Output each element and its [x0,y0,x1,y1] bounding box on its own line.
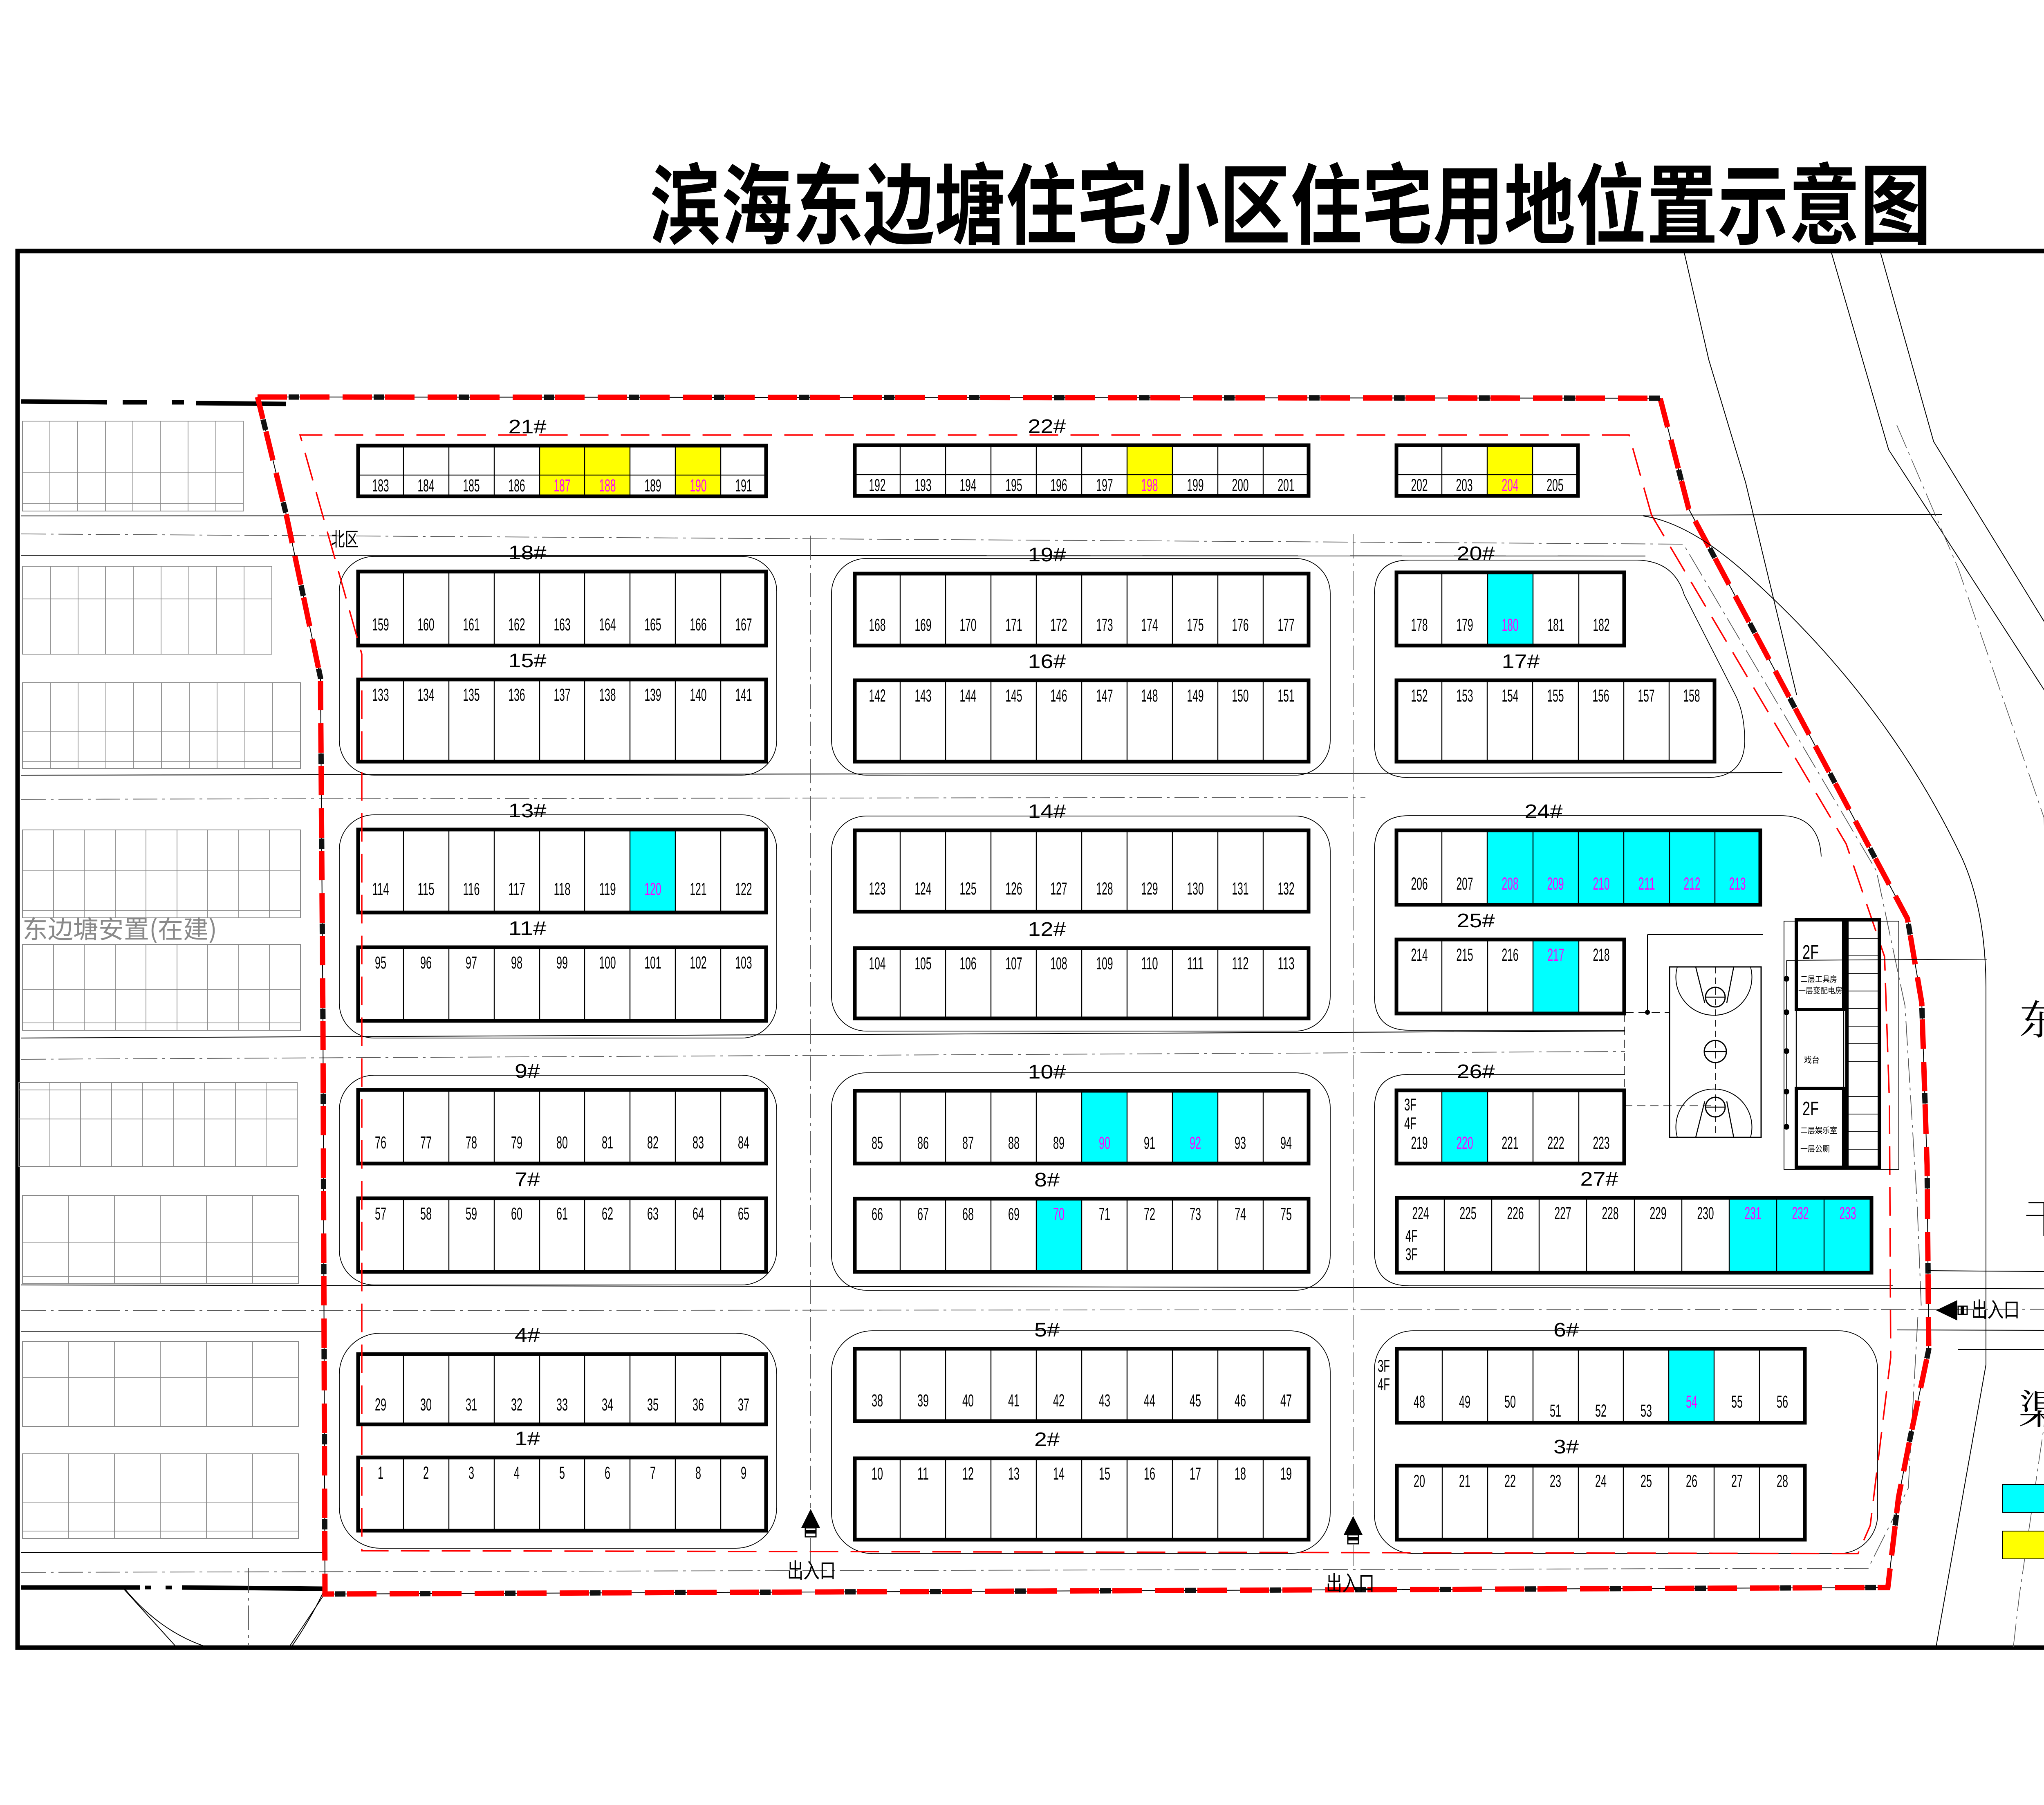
svg-text:60: 60 [511,1204,522,1224]
svg-text:120: 120 [645,879,661,899]
svg-text:13: 13 [1008,1464,1020,1484]
svg-text:11: 11 [917,1464,929,1484]
svg-text:43: 43 [1099,1391,1110,1410]
svg-text:182: 182 [1593,615,1610,635]
svg-text:17: 17 [1190,1464,1201,1484]
svg-text:58: 58 [420,1204,432,1224]
svg-text:215: 215 [1457,945,1473,965]
svg-text:211: 211 [1638,874,1655,894]
svg-text:12#: 12# [1028,919,1066,940]
svg-text:37: 37 [738,1395,749,1415]
svg-text:183: 183 [372,476,389,496]
svg-text:173: 173 [1096,615,1113,635]
svg-text:102: 102 [690,953,707,973]
svg-text:31: 31 [466,1395,477,1415]
svg-text:217: 217 [1548,945,1564,965]
svg-text:118: 118 [554,879,571,899]
svg-text:34: 34 [602,1395,613,1415]
svg-text:25: 25 [1641,1471,1652,1491]
svg-text:159: 159 [372,615,389,635]
svg-text:176: 176 [1232,615,1249,635]
svg-text:223: 223 [1593,1133,1610,1153]
svg-text:153: 153 [1457,686,1473,706]
svg-text:216: 216 [1502,945,1519,965]
svg-text:169: 169 [915,615,932,635]
svg-text:40: 40 [962,1391,974,1410]
svg-text:143: 143 [915,686,932,706]
svg-text:4F: 4F [1404,1114,1416,1133]
svg-text:220: 220 [1457,1133,1473,1153]
svg-text:30: 30 [420,1395,432,1415]
svg-text:15: 15 [1099,1464,1110,1484]
svg-text:156: 156 [1593,686,1609,706]
svg-text:73: 73 [1190,1204,1201,1224]
svg-text:81: 81 [602,1133,613,1153]
svg-text:77: 77 [420,1133,432,1153]
svg-text:92: 92 [1190,1133,1201,1153]
svg-text:33: 33 [556,1395,568,1415]
svg-text:3F: 3F [1405,1244,1418,1264]
svg-text:16#: 16# [1028,651,1066,673]
svg-text:160: 160 [418,615,435,635]
svg-text:15#: 15# [509,650,547,672]
svg-text:7: 7 [650,1463,656,1483]
svg-text:16: 16 [1144,1464,1155,1484]
svg-text:188: 188 [599,476,616,496]
svg-text:83: 83 [693,1133,704,1153]
svg-text:146: 146 [1051,686,1067,706]
svg-text:151: 151 [1278,686,1295,706]
svg-text:170: 170 [960,615,977,635]
svg-text:165: 165 [645,615,661,635]
svg-text:14: 14 [1053,1464,1065,1484]
svg-text:103: 103 [735,953,752,973]
svg-text:152: 152 [1411,686,1428,706]
svg-text:5#: 5# [1034,1319,1060,1341]
svg-text:56: 56 [1777,1392,1788,1412]
svg-text:86: 86 [917,1133,929,1153]
svg-text:174: 174 [1141,615,1158,635]
svg-text:39: 39 [917,1391,929,1410]
svg-text:225: 225 [1460,1204,1477,1223]
svg-text:104: 104 [869,954,886,973]
svg-text:20: 20 [1414,1471,1425,1491]
svg-text:91: 91 [1144,1133,1155,1153]
svg-text:108: 108 [1051,954,1067,973]
svg-text:101: 101 [645,953,661,973]
svg-text:139: 139 [645,685,661,705]
svg-text:76: 76 [375,1133,386,1153]
svg-text:190: 190 [690,476,707,496]
svg-text:52: 52 [1595,1401,1607,1421]
svg-text:38: 38 [872,1391,883,1410]
svg-text:155: 155 [1547,686,1564,706]
svg-text:226: 226 [1507,1204,1524,1223]
svg-text:49: 49 [1459,1392,1470,1412]
svg-text:48: 48 [1414,1392,1425,1412]
svg-text:63: 63 [647,1204,659,1224]
svg-text:67: 67 [917,1204,929,1224]
svg-text:162: 162 [509,615,525,635]
svg-text:9#: 9# [515,1061,540,1082]
svg-text:18: 18 [1235,1464,1246,1484]
svg-text:207: 207 [1457,874,1473,894]
svg-text:23: 23 [1550,1471,1561,1491]
svg-text:203: 203 [1456,475,1473,495]
svg-text:10: 10 [872,1464,883,1484]
svg-text:127: 127 [1051,879,1067,899]
svg-text:132: 132 [1278,879,1295,899]
svg-text:110: 110 [1141,954,1158,973]
svg-text:163: 163 [554,615,571,635]
svg-text:84: 84 [738,1133,749,1153]
svg-text:168: 168 [869,615,886,635]
svg-text:147: 147 [1096,686,1113,706]
svg-text:219: 219 [1411,1133,1428,1153]
svg-text:46: 46 [1235,1391,1246,1410]
svg-text:149: 149 [1187,686,1204,706]
svg-text:47: 47 [1280,1391,1292,1410]
svg-text:185: 185 [463,476,480,496]
svg-text:28: 28 [1777,1471,1788,1491]
svg-text:87: 87 [962,1133,974,1153]
svg-text:57: 57 [375,1204,386,1224]
svg-text:5: 5 [559,1463,565,1483]
svg-text:166: 166 [690,615,707,635]
svg-text:96: 96 [420,953,432,973]
svg-text:210: 210 [1593,874,1610,894]
svg-text:65: 65 [738,1204,749,1224]
svg-text:209: 209 [1547,874,1564,894]
svg-text:4#: 4# [515,1325,540,1346]
svg-text:32: 32 [511,1395,522,1415]
svg-text:113: 113 [1278,954,1295,973]
svg-text:213: 213 [1729,874,1746,894]
svg-text:154: 154 [1502,686,1519,706]
svg-text:111: 111 [1187,954,1204,973]
svg-text:197: 197 [1096,475,1113,495]
svg-text:145: 145 [1006,686,1022,706]
svg-text:100: 100 [599,953,616,973]
svg-text:24: 24 [1595,1471,1607,1491]
svg-text:50: 50 [1504,1392,1516,1412]
svg-text:19: 19 [1280,1464,1292,1484]
svg-text:204: 204 [1502,475,1519,495]
svg-text:55: 55 [1731,1392,1743,1412]
svg-text:82: 82 [647,1133,659,1153]
svg-text:123: 123 [869,879,886,899]
svg-text:74: 74 [1235,1204,1246,1224]
svg-text:26#: 26# [1457,1061,1495,1083]
svg-text:12: 12 [962,1464,974,1484]
svg-text:22#: 22# [1028,416,1066,437]
svg-text:179: 179 [1457,615,1473,635]
svg-text:191: 191 [735,476,752,496]
svg-text:130: 130 [1187,879,1204,899]
svg-text:66: 66 [872,1204,883,1224]
svg-text:205: 205 [1547,475,1564,495]
svg-text:196: 196 [1051,475,1067,495]
svg-text:124: 124 [915,879,932,899]
svg-text:199: 199 [1187,475,1204,495]
svg-text:70: 70 [1053,1204,1065,1224]
svg-text:112: 112 [1232,954,1249,973]
svg-text:141: 141 [735,685,752,705]
svg-text:11#: 11# [509,918,547,939]
svg-text:27: 27 [1731,1471,1743,1491]
svg-text:119: 119 [599,879,616,899]
svg-text:3#: 3# [1553,1436,1579,1458]
svg-text:157: 157 [1638,686,1655,706]
svg-text:192: 192 [869,475,886,495]
svg-text:89: 89 [1053,1133,1065,1153]
svg-text:144: 144 [960,686,977,706]
svg-text:134: 134 [418,685,435,705]
svg-text:201: 201 [1278,475,1295,495]
svg-text:14#: 14# [1028,801,1066,823]
svg-text:35: 35 [647,1395,659,1415]
svg-text:181: 181 [1548,615,1564,635]
svg-text:164: 164 [599,615,616,635]
svg-text:20#: 20# [1457,543,1495,565]
svg-text:94: 94 [1280,1133,1292,1153]
svg-text:61: 61 [556,1204,568,1224]
svg-text:158: 158 [1683,686,1700,706]
svg-text:13#: 13# [509,800,547,822]
svg-text:218: 218 [1593,945,1610,965]
svg-text:187: 187 [554,476,571,496]
svg-text:62: 62 [602,1204,613,1224]
svg-text:71: 71 [1099,1204,1110,1224]
svg-text:42: 42 [1053,1391,1065,1410]
svg-text:200: 200 [1232,475,1249,495]
svg-text:44: 44 [1144,1391,1155,1410]
svg-text:142: 142 [869,686,886,706]
svg-text:177: 177 [1278,615,1295,635]
svg-text:184: 184 [418,476,435,496]
svg-text:228: 228 [1602,1204,1619,1223]
svg-text:140: 140 [690,685,707,705]
svg-text:88: 88 [1008,1133,1020,1153]
svg-text:27#: 27# [1580,1168,1618,1190]
svg-text:133: 133 [372,685,389,705]
svg-text:109: 109 [1096,954,1113,973]
svg-text:171: 171 [1006,615,1022,635]
svg-text:36: 36 [693,1395,704,1415]
svg-text:137: 137 [554,685,571,705]
svg-text:8#: 8# [1034,1169,1060,1191]
svg-text:72: 72 [1144,1204,1155,1224]
svg-text:121: 121 [690,879,707,899]
svg-text:232: 232 [1792,1204,1809,1223]
svg-text:202: 202 [1411,475,1428,495]
svg-text:17#: 17# [1502,651,1540,673]
svg-text:195: 195 [1006,475,1022,495]
svg-text:26: 26 [1686,1471,1697,1491]
svg-text:4F: 4F [1378,1374,1390,1394]
svg-text:59: 59 [466,1204,477,1224]
svg-text:193: 193 [915,475,932,495]
svg-text:1#: 1# [515,1428,540,1450]
svg-text:117: 117 [509,879,525,899]
svg-text:122: 122 [735,879,752,899]
svg-text:2: 2 [423,1463,429,1483]
svg-text:148: 148 [1141,686,1158,706]
svg-text:3F: 3F [1404,1095,1416,1114]
svg-text:53: 53 [1641,1401,1652,1421]
svg-text:45: 45 [1190,1391,1201,1410]
svg-text:161: 161 [463,615,480,635]
svg-text:4: 4 [514,1463,520,1483]
svg-text:107: 107 [1006,954,1022,973]
svg-text:198: 198 [1141,475,1158,495]
svg-text:79: 79 [511,1133,522,1153]
svg-text:115: 115 [418,879,435,899]
svg-text:2#: 2# [1034,1429,1060,1451]
svg-text:194: 194 [960,475,977,495]
svg-text:129: 129 [1141,879,1158,899]
svg-text:208: 208 [1502,874,1519,894]
svg-text:180: 180 [1502,615,1519,635]
svg-text:136: 136 [509,685,525,705]
svg-text:186: 186 [509,476,525,496]
svg-text:7#: 7# [515,1169,540,1191]
svg-text:172: 172 [1051,615,1067,635]
svg-text:80: 80 [556,1133,568,1153]
svg-text:231: 231 [1745,1204,1762,1223]
svg-text:22: 22 [1504,1471,1516,1491]
svg-text:1: 1 [378,1463,383,1483]
svg-text:212: 212 [1684,874,1701,894]
svg-text:97: 97 [466,953,477,973]
svg-text:93: 93 [1235,1133,1246,1153]
svg-text:2F: 2F [1802,1098,1819,1120]
svg-text:114: 114 [372,879,389,899]
svg-text:138: 138 [599,685,616,705]
svg-text:206: 206 [1411,874,1428,894]
svg-text:64: 64 [693,1204,704,1224]
svg-text:6: 6 [605,1463,610,1483]
svg-text:21: 21 [1459,1471,1470,1491]
svg-text:18#: 18# [509,542,547,564]
svg-text:24#: 24# [1525,801,1563,823]
svg-text:41: 41 [1008,1391,1020,1410]
svg-text:51: 51 [1550,1401,1561,1421]
svg-text:3F: 3F [1378,1356,1390,1375]
svg-text:95: 95 [375,953,386,973]
svg-text:116: 116 [463,879,480,899]
svg-text:68: 68 [962,1204,974,1224]
svg-text:106: 106 [960,954,977,973]
svg-text:9: 9 [741,1463,746,1483]
svg-text:10#: 10# [1028,1061,1066,1083]
svg-text:131: 131 [1232,879,1249,899]
svg-text:99: 99 [556,953,568,973]
svg-text:90: 90 [1099,1133,1110,1153]
svg-text:25#: 25# [1457,910,1495,932]
svg-text:8: 8 [695,1463,701,1483]
svg-text:178: 178 [1411,615,1428,635]
svg-text:6#: 6# [1553,1319,1579,1341]
svg-text:126: 126 [1006,879,1022,899]
svg-text:175: 175 [1187,615,1204,635]
svg-text:214: 214 [1411,945,1428,965]
svg-text:189: 189 [645,476,661,496]
svg-text:167: 167 [735,615,752,635]
svg-text:135: 135 [463,685,480,705]
svg-text:85: 85 [872,1133,883,1153]
svg-text:229: 229 [1650,1204,1667,1223]
svg-text:69: 69 [1008,1204,1020,1224]
svg-text:54: 54 [1686,1392,1697,1412]
svg-text:78: 78 [466,1133,477,1153]
svg-text:221: 221 [1502,1133,1519,1153]
svg-text:128: 128 [1096,879,1113,899]
svg-text:150: 150 [1232,686,1249,706]
svg-text:222: 222 [1548,1133,1564,1153]
svg-text:4F: 4F [1405,1226,1418,1245]
svg-text:227: 227 [1555,1204,1571,1223]
svg-text:233: 233 [1840,1204,1856,1223]
svg-text:19#: 19# [1028,544,1066,566]
svg-text:230: 230 [1697,1204,1714,1223]
svg-text:3: 3 [468,1463,474,1483]
svg-text:105: 105 [915,954,932,973]
svg-text:75: 75 [1280,1204,1292,1224]
svg-text:29: 29 [375,1395,386,1415]
svg-text:224: 224 [1412,1204,1429,1223]
svg-text:98: 98 [511,953,522,973]
svg-text:125: 125 [960,879,977,899]
